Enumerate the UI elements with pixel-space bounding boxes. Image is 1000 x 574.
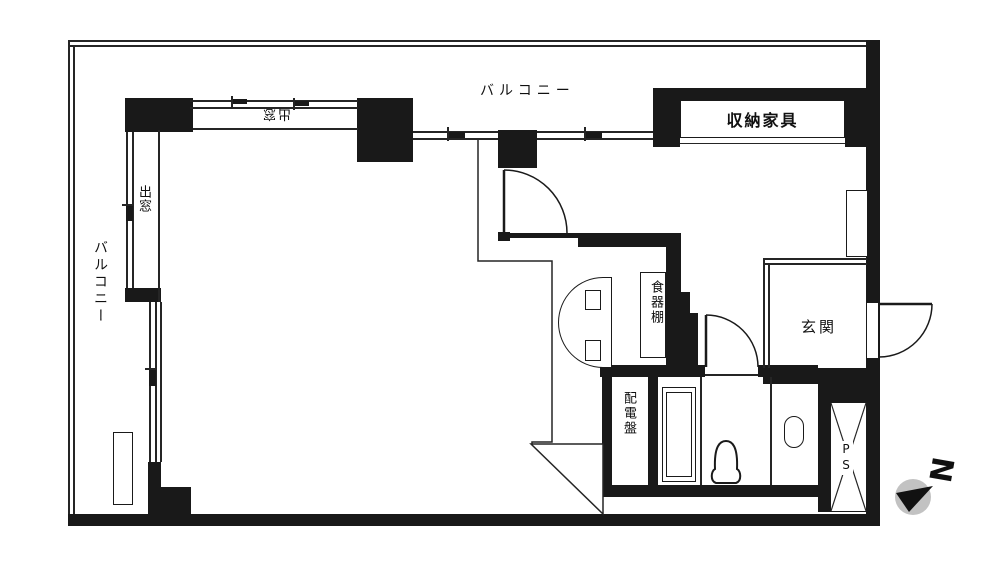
- bay-window-top-label: 出窓: [253, 106, 299, 125]
- corner-cabinet-triangle: [531, 444, 603, 514]
- pipe-space-label: PS: [839, 441, 853, 475]
- balcony-top-label: バルコニー: [480, 80, 575, 100]
- bay-window-left-label: 出窓: [134, 185, 153, 213]
- wall-stepped-kitchen: [666, 247, 698, 377]
- balcony-left-label: バルコニー: [90, 240, 110, 325]
- kitchen-partition-line: [478, 140, 552, 445]
- bath-door-arc: [706, 315, 758, 367]
- cupboard-label: 食器棚: [646, 280, 665, 325]
- distribution-board-label: 配電盤: [619, 391, 638, 436]
- living-door-arc: [504, 170, 567, 233]
- toilet: [712, 441, 741, 483]
- entry-door-arc: [879, 304, 932, 357]
- floor-plan: バルコニー バルコニー 出窓 出窓 収納家具 食器棚 配電盤 玄関 PS N: [0, 0, 1000, 574]
- entrance-label: 玄関: [801, 316, 837, 337]
- storage-furniture-label: 収納家具: [680, 100, 845, 138]
